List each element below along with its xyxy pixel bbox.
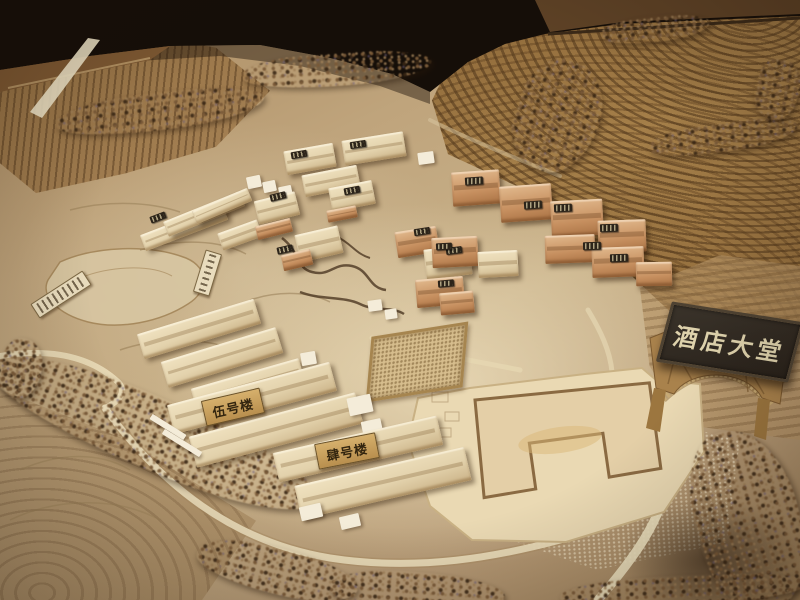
groundwork-graphics <box>0 0 800 600</box>
building-name-plaque <box>583 242 601 251</box>
small-building <box>417 151 435 165</box>
building-name-plaque <box>554 204 572 213</box>
villa-row-east <box>451 169 501 206</box>
small-building <box>384 308 397 320</box>
gazebo <box>300 351 317 366</box>
building-name-plaque <box>465 176 484 185</box>
building-name-plaque <box>610 254 628 263</box>
building-name-plaque <box>438 279 455 287</box>
small-building <box>367 299 382 312</box>
building-name-plaque <box>600 224 618 233</box>
building-name-plaque <box>524 200 543 209</box>
building-no4-label: 肆号楼 <box>325 438 370 465</box>
model-photo: 伍号楼 肆号楼 酒店大堂 <box>0 0 800 600</box>
building-name-plaque <box>436 243 452 251</box>
villa-row-east-lower <box>477 250 518 278</box>
villa-row-east-lower <box>636 262 672 287</box>
villa <box>439 291 475 316</box>
hotel-lobby-label: 酒店大堂 <box>670 316 790 368</box>
